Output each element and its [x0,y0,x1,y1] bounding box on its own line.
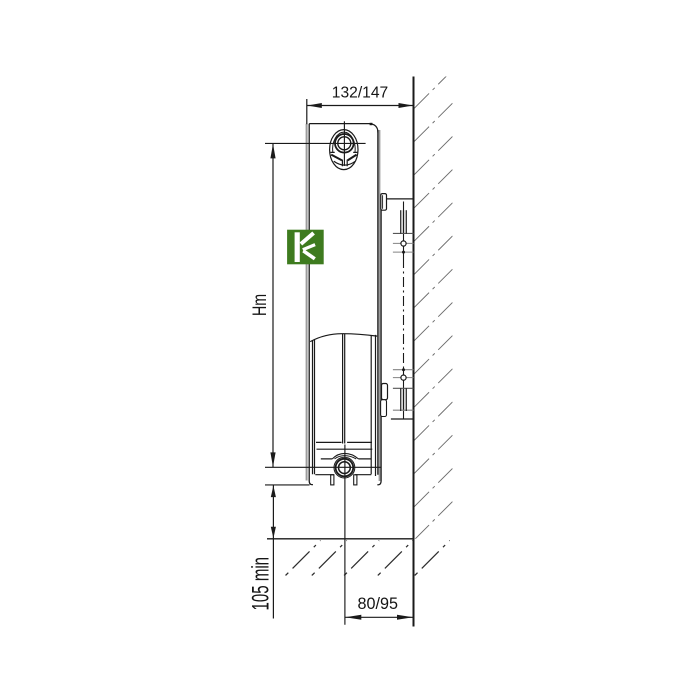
svg-text:80/95: 80/95 [358,594,399,613]
svg-text:105 min: 105 min [247,557,274,611]
svg-text:132/147: 132/147 [332,84,389,101]
svg-text:Hm: Hm [250,294,271,316]
